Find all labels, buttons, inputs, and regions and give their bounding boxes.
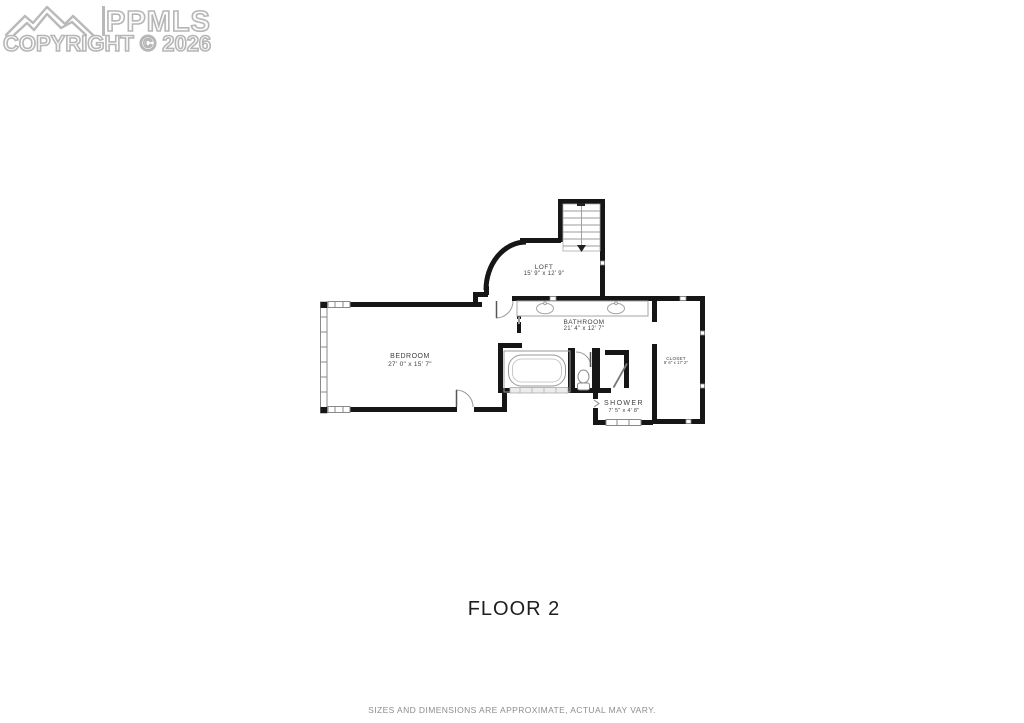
staircase	[563, 203, 600, 252]
toilet	[578, 370, 590, 390]
vanity-double-sink	[517, 301, 648, 316]
room-label-bathroom: BATHROOM 21' 4" x 12' 7"	[563, 319, 604, 333]
bath-entry-jamb	[518, 317, 520, 324]
floor-plan-page: PPMLS COPYRIGHT © 2026	[0, 0, 1024, 723]
room-dimensions: 21' 4" x 12' 7"	[563, 326, 604, 333]
room-dimensions: 7' 5" x 4' 8"	[604, 408, 644, 414]
floor-title: FLOOR 2	[468, 598, 561, 621]
shower-entry-marker	[593, 399, 599, 408]
room-name: SHOWER	[604, 400, 644, 408]
room-dimensions: 27' 0" x 15' 7"	[388, 361, 432, 368]
room-name: BEDROOM	[388, 353, 432, 361]
room-dimensions: 6' 6" x 17' 2"	[664, 361, 688, 366]
room-label-loft: LOFT 15' 9" x 12' 9"	[524, 264, 565, 278]
room-dimensions: 15' 9" x 12' 9"	[524, 271, 565, 278]
room-name: LOFT	[524, 264, 565, 271]
bathtub	[504, 351, 570, 393]
disclaimer-text: SIZES AND DIMENSIONS ARE APPROXIMATE, AC…	[368, 705, 656, 715]
room-name: BATHROOM	[563, 319, 604, 326]
room-label-closet: CLOSET 6' 6" x 17' 2"	[664, 356, 688, 366]
stair-top-marker	[577, 203, 585, 206]
tub-apron	[510, 388, 568, 394]
room-label-bedroom: BEDROOM 27' 0" x 15' 7"	[388, 353, 432, 369]
curved-wall	[486, 242, 526, 290]
room-label-shower: SHOWER 7' 5" x 4' 8"	[604, 400, 644, 414]
